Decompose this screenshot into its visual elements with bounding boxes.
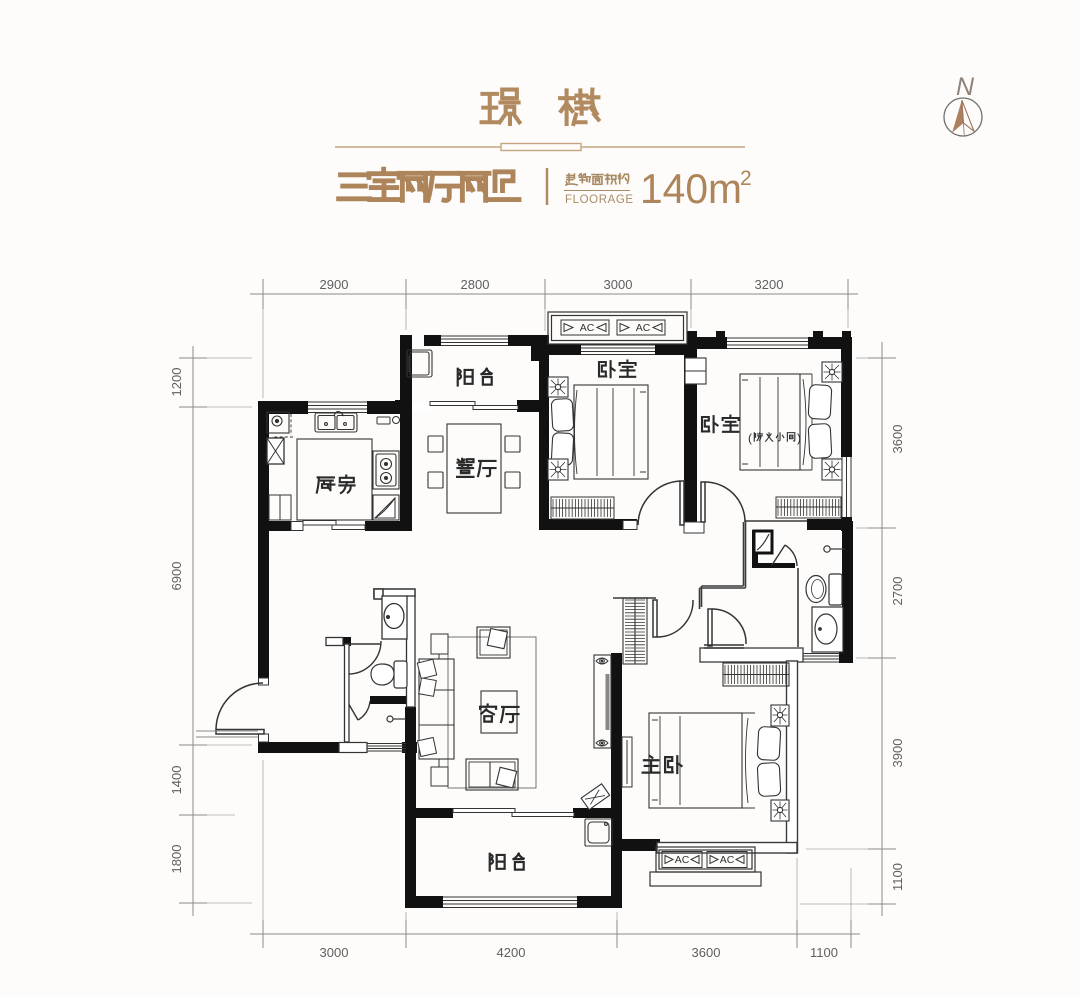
svg-text:3900: 3900 — [890, 739, 905, 768]
svg-text:): ) — [797, 431, 801, 445]
svg-text:3600: 3600 — [692, 945, 721, 960]
svg-text:AC: AC — [720, 854, 735, 866]
svg-text:2900: 2900 — [320, 277, 349, 292]
svg-text:140m: 140m — [640, 165, 742, 212]
svg-text:N: N — [956, 73, 975, 101]
svg-text:1200: 1200 — [169, 368, 184, 397]
svg-text:1100: 1100 — [810, 945, 838, 960]
svg-text:2: 2 — [740, 167, 752, 190]
svg-text:FLOORAGE: FLOORAGE — [565, 194, 634, 206]
svg-text:2700: 2700 — [890, 577, 905, 606]
svg-text:AC: AC — [636, 322, 651, 334]
svg-text:AC: AC — [580, 322, 595, 334]
svg-text:4200: 4200 — [497, 945, 526, 960]
svg-text:3000: 3000 — [320, 945, 349, 960]
svg-text:2800: 2800 — [461, 277, 490, 292]
svg-text:6900: 6900 — [169, 562, 184, 591]
svg-text:3200: 3200 — [755, 277, 784, 292]
svg-text:3600: 3600 — [890, 425, 905, 454]
svg-text:1400: 1400 — [169, 766, 184, 795]
svg-text:1100: 1100 — [890, 863, 905, 891]
svg-text:3000: 3000 — [604, 277, 633, 292]
svg-text:1800: 1800 — [169, 845, 184, 874]
svg-text:(: ( — [748, 431, 752, 445]
svg-text:AC: AC — [675, 854, 690, 866]
